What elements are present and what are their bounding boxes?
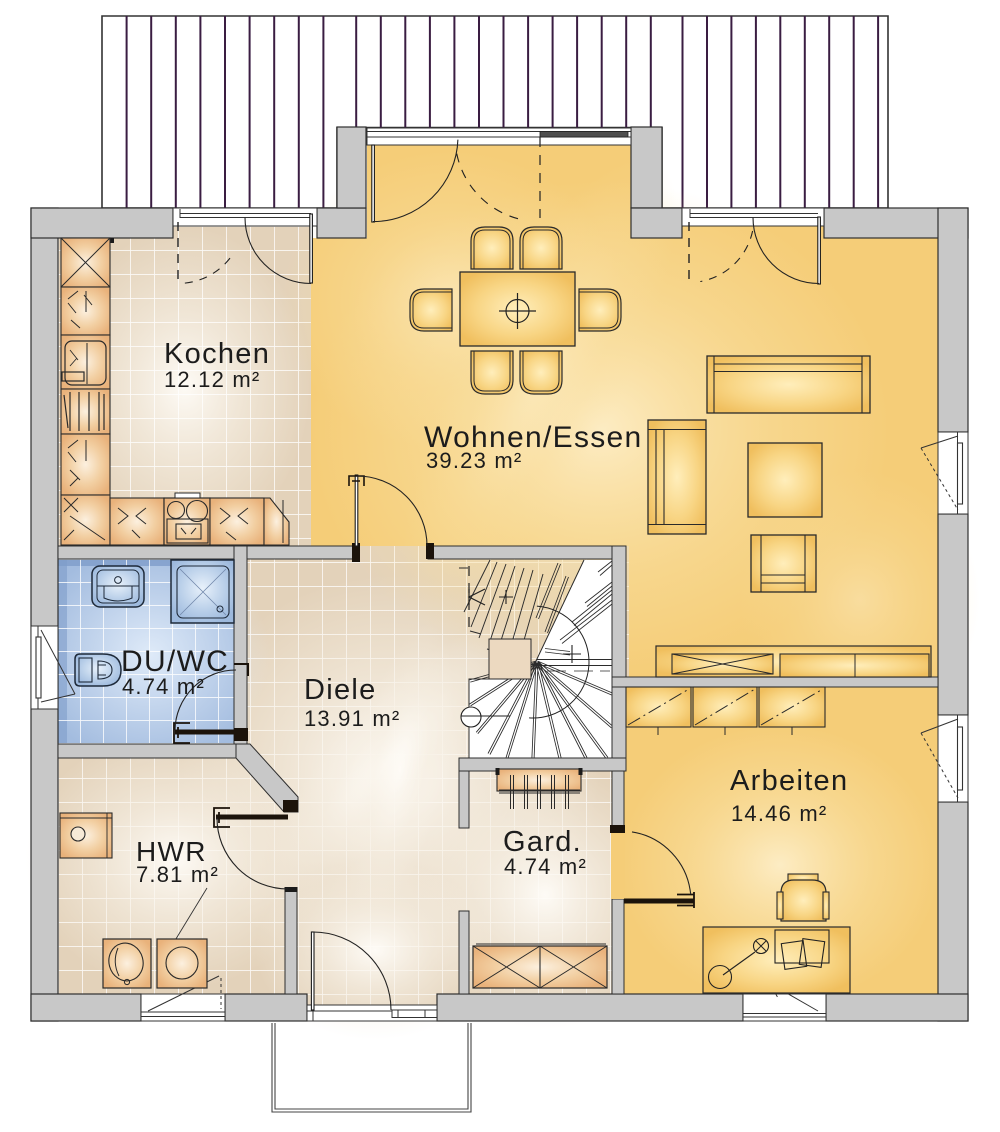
svg-text:4.74 m²: 4.74 m² [504, 854, 587, 879]
svg-text:14.46 m²: 14.46 m² [731, 801, 827, 826]
svg-text:Arbeiten: Arbeiten [730, 765, 848, 797]
svg-text:12.12 m²: 12.12 m² [164, 367, 260, 392]
svg-text:7.81 m²: 7.81 m² [136, 862, 219, 887]
svg-text:Kochen: Kochen [164, 338, 270, 370]
svg-text:13.91 m²: 13.91 m² [304, 706, 400, 731]
svg-text:Diele: Diele [304, 674, 377, 706]
svg-text:4.74 m²: 4.74 m² [122, 674, 205, 699]
svg-text:39.23 m²: 39.23 m² [426, 448, 522, 473]
